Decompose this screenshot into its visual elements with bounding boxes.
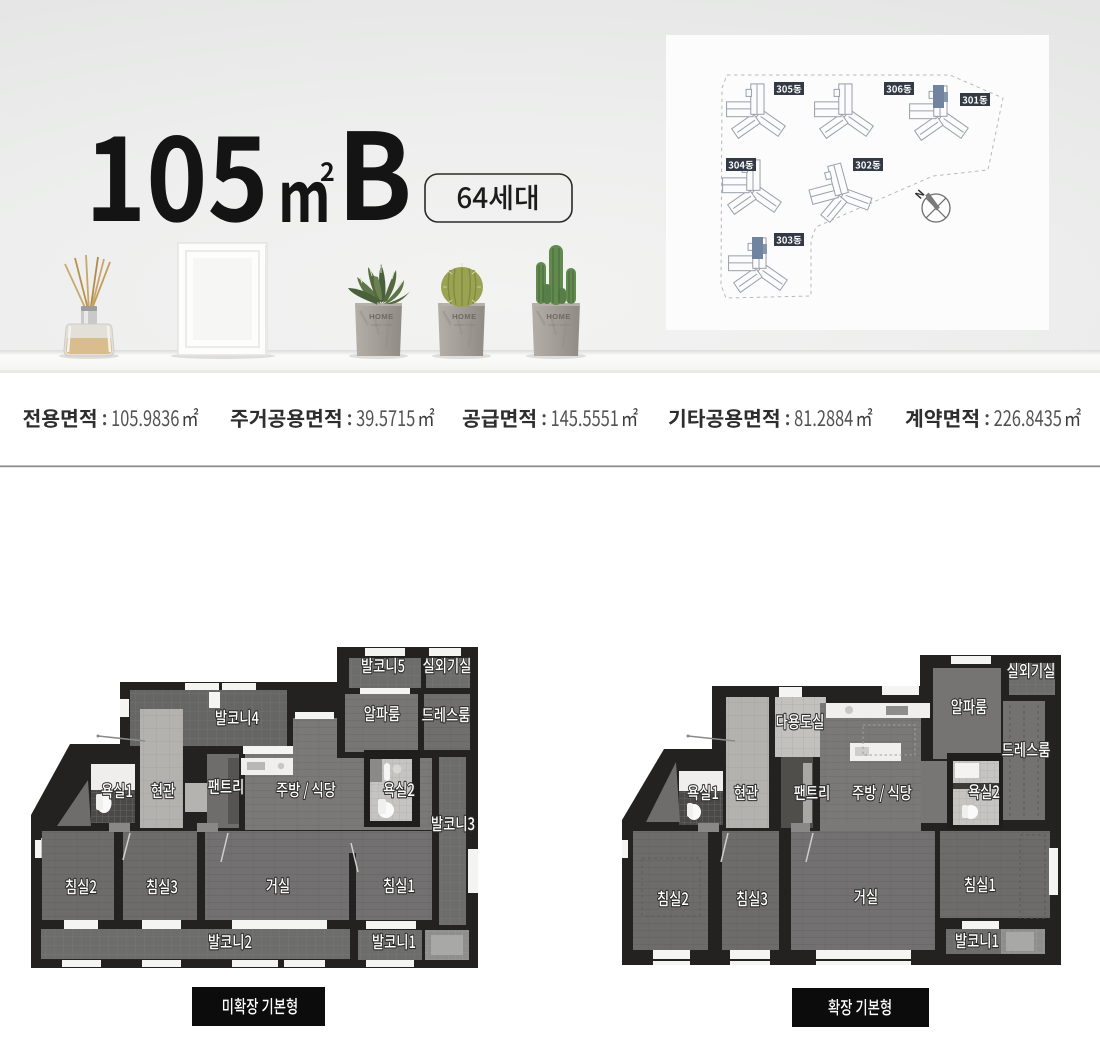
svg-text:sweet home: sweet home (548, 322, 570, 327)
svg-text:sweet home: sweet home (454, 322, 476, 327)
svg-text:HOME: HOME (546, 312, 571, 321)
svg-text:sweet home: sweet home (371, 322, 393, 327)
svg-text:HOME: HOME (369, 312, 394, 321)
svg-text:HOME: HOME (452, 312, 477, 321)
